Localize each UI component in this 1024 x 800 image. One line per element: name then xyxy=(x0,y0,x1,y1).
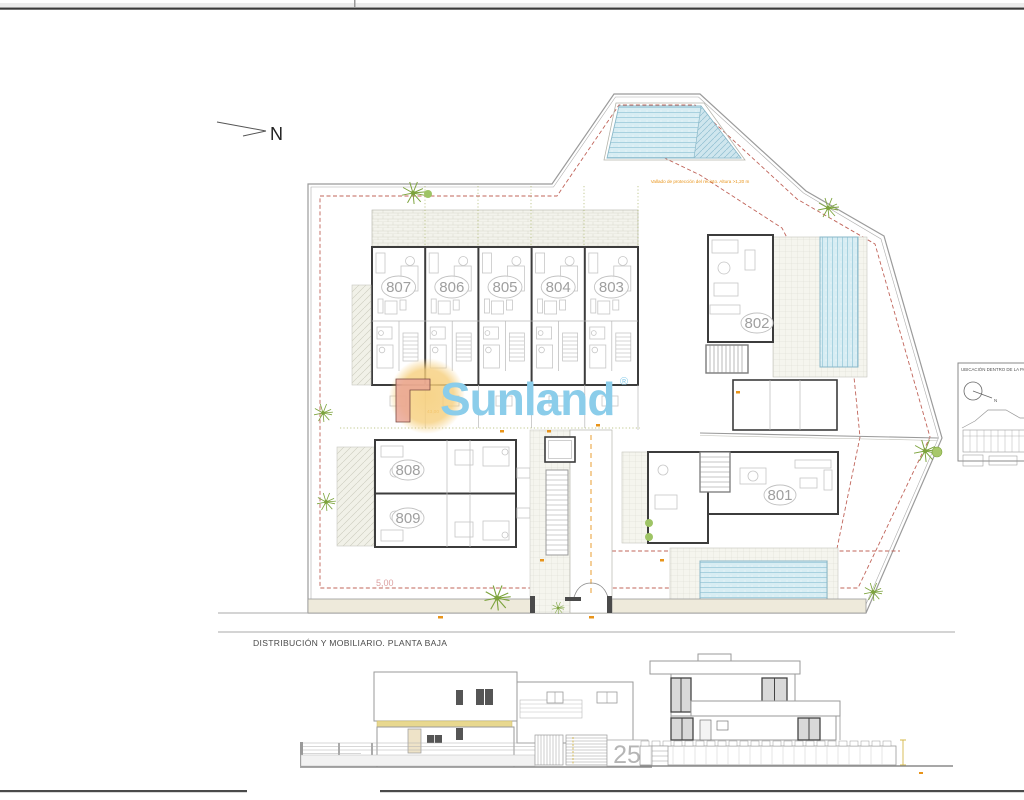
pool-802 xyxy=(820,237,858,367)
location-inset-title: UBICACIÓN DENTRO DE LA PARC xyxy=(961,367,1024,372)
sheet-title: DISTRIBUCIÓN Y MOBILIARIO. PLANTA BAJA xyxy=(253,638,447,648)
unit-label-809: 809 xyxy=(392,508,424,528)
pergola-roof xyxy=(372,210,638,247)
unit-label-806: 806 xyxy=(435,276,469,298)
svg-text:807: 807 xyxy=(386,279,411,296)
svg-text:802: 802 xyxy=(744,315,769,332)
page-bottom-border xyxy=(0,790,1024,792)
svg-text:808: 808 xyxy=(395,462,420,479)
title-block: DISTRIBUCIÓN Y MOBILIARIO. PLANTA BAJA xyxy=(218,613,955,648)
plan-sheet: N Vallado de protección del recinto. Alt… xyxy=(0,0,1024,800)
unit-label-808: 808 xyxy=(392,460,424,480)
unit-label-803: 803 xyxy=(594,276,628,298)
villa-801: 801 xyxy=(622,452,838,607)
page-top-border xyxy=(0,0,1024,10)
svg-text:801: 801 xyxy=(767,487,792,504)
house-number: 25 xyxy=(613,741,641,769)
svg-text:805: 805 xyxy=(492,279,517,296)
unit-label-805: 805 xyxy=(488,276,522,298)
watermark-registered: ® xyxy=(620,376,628,388)
unit-label-802: 802 xyxy=(741,313,773,333)
facade-band xyxy=(377,721,512,727)
fence-note: Vallado de protección del recinto. Altur… xyxy=(651,179,750,184)
north-arrow: N xyxy=(217,122,283,144)
unit-label-807: 807 xyxy=(382,276,416,298)
unit-label-801: 801 xyxy=(764,485,796,505)
front-door xyxy=(408,729,421,753)
gate-vertical-slats xyxy=(535,735,563,765)
gate-horizontal-slats xyxy=(566,735,607,765)
dim-5: 5,00 xyxy=(376,578,394,588)
pool-801 xyxy=(700,561,827,601)
svg-text:803: 803 xyxy=(599,279,624,296)
unit-label-804: 804 xyxy=(541,276,575,298)
central-access xyxy=(530,430,612,613)
elevation-right xyxy=(640,654,953,766)
svg-text:804: 804 xyxy=(546,279,571,296)
boundary-wall xyxy=(640,741,896,766)
north-label: N xyxy=(270,124,283,144)
svg-text:806: 806 xyxy=(439,279,464,296)
villa-802: 802 xyxy=(706,235,867,430)
duplex-808-809: 808 809 xyxy=(375,440,530,547)
svg-text:809: 809 xyxy=(395,510,420,527)
elevation-left: 25 xyxy=(300,672,652,769)
watermark-brand: Sunland xyxy=(440,373,614,425)
inset-north-label: N xyxy=(994,398,997,403)
location-inset: UBICACIÓN DENTRO DE LA PARC N xyxy=(958,363,1024,466)
